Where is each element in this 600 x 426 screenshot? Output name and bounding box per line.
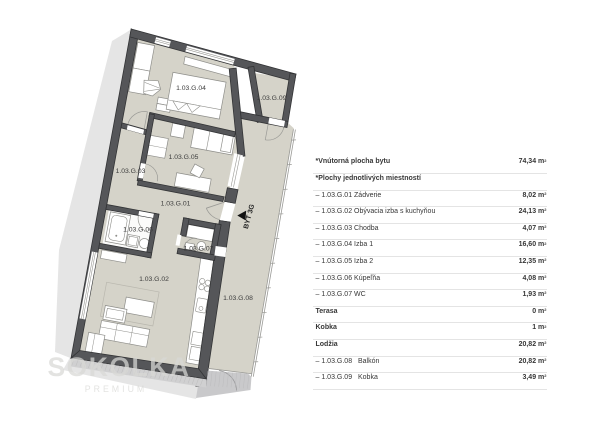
- svg-text:1.03.G.05: 1.03.G.05: [169, 154, 199, 161]
- svg-text:1.03.G.01: 1.03.G.01: [161, 201, 191, 208]
- svg-text:1.03.G.06: 1.03.G.06: [123, 226, 153, 233]
- svg-text:1.03.G.02: 1.03.G.02: [139, 276, 169, 283]
- svg-text:1.03.G.08: 1.03.G.08: [223, 295, 253, 302]
- svg-text:1.03.G.09: 1.03.G.09: [257, 95, 287, 102]
- svg-text:PREMIUM: PREMIUM: [85, 384, 148, 394]
- svg-text:1.03.G.07: 1.03.G.07: [184, 245, 214, 252]
- svg-text:1.03.G.03: 1.03.G.03: [116, 168, 146, 175]
- svg-text:SOKOLKA: SOKOLKA: [48, 352, 191, 382]
- svg-text:1.03.G.04: 1.03.G.04: [176, 85, 206, 92]
